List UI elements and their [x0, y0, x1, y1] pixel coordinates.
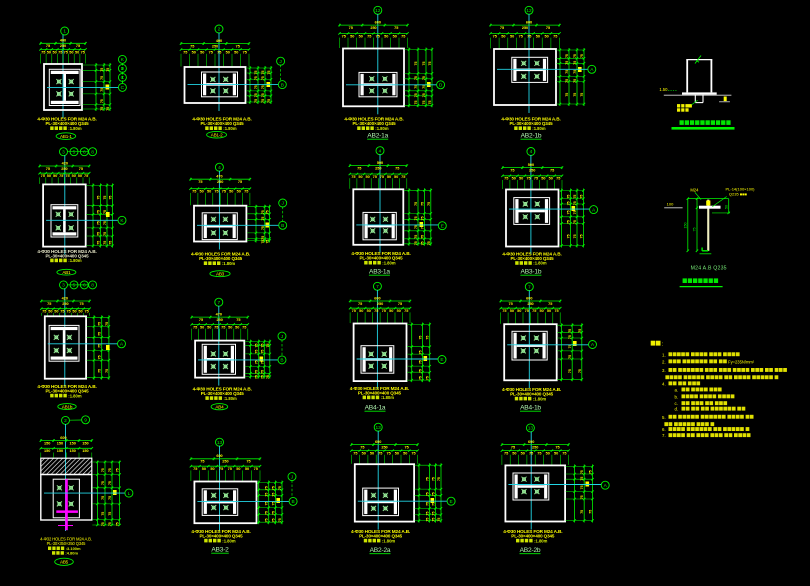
svg-text:50: 50	[362, 452, 366, 456]
svg-text:50: 50	[235, 325, 239, 329]
svg-text:75: 75	[353, 452, 357, 456]
svg-text:75: 75	[100, 76, 104, 80]
svg-text:75: 75	[401, 34, 405, 38]
svg-text:50: 50	[544, 34, 548, 38]
svg-text:75: 75	[100, 88, 104, 92]
svg-text:75: 75	[254, 76, 258, 80]
svg-text:4: 4	[218, 165, 221, 171]
svg-text:13: 13	[528, 426, 534, 432]
svg-text:PL-30×400×400 Q345: PL-30×400×400 Q345	[353, 121, 397, 126]
svg-text::1.80m: :1.80m	[68, 258, 82, 263]
svg-text:75: 75	[255, 370, 259, 374]
svg-text:75: 75	[209, 50, 213, 54]
svg-text:75: 75	[420, 216, 424, 220]
svg-text:D: D	[121, 66, 125, 72]
svg-text:75: 75	[565, 79, 569, 83]
svg-text:75: 75	[426, 477, 430, 481]
svg-text:AB3-1a: AB3-1a	[369, 269, 390, 276]
svg-text:75: 75	[59, 174, 63, 178]
svg-text:600: 600	[526, 21, 532, 25]
svg-text:75: 75	[555, 446, 559, 450]
svg-text:75: 75	[266, 344, 270, 348]
svg-text:75: 75	[419, 369, 423, 373]
svg-text:PL-30×400×400 Q345: PL-30×400×400 Q345	[511, 256, 555, 261]
svg-text:75: 75	[103, 221, 107, 225]
svg-text:75: 75	[108, 512, 112, 516]
svg-text:75: 75	[278, 518, 282, 522]
svg-text:50: 50	[192, 50, 196, 54]
svg-text::1.80m: :1.80m	[68, 126, 82, 131]
svg-text:7: 7	[528, 284, 531, 290]
svg-text:250: 250	[212, 44, 218, 48]
svg-text:75: 75	[573, 54, 577, 58]
svg-text:250: 250	[217, 318, 223, 322]
svg-text::1.80m: :1.80m	[222, 538, 236, 543]
svg-text:PL-30×400×400 Q345: PL-30×400×400 Q345	[360, 256, 404, 261]
svg-text:400: 400	[60, 39, 66, 43]
svg-text:75: 75	[527, 34, 531, 38]
svg-text:50: 50	[200, 325, 204, 329]
svg-text:75: 75	[42, 310, 46, 314]
svg-text:75: 75	[426, 518, 430, 522]
svg-text:AB1-2: AB1-2	[211, 132, 223, 137]
svg-text::1.80m: :1.80m	[224, 396, 238, 401]
svg-text::1.80m: :1.80m	[223, 126, 237, 131]
svg-text:50: 50	[226, 50, 230, 54]
svg-text:75: 75	[510, 169, 514, 173]
svg-text:75: 75	[266, 240, 270, 244]
svg-text:50: 50	[389, 309, 393, 313]
svg-text:600: 600	[528, 440, 534, 444]
svg-text:250: 250	[381, 446, 387, 450]
svg-text:250: 250	[529, 169, 535, 173]
svg-text:8: 8	[91, 283, 94, 289]
svg-text:600: 600	[375, 21, 381, 25]
svg-text:75: 75	[380, 175, 384, 179]
svg-text:4.: 4.	[662, 381, 666, 386]
svg-text:75: 75	[221, 325, 225, 329]
svg-text:50: 50	[245, 467, 249, 471]
svg-text:AB3-2: AB3-2	[211, 547, 229, 554]
svg-text:75: 75	[567, 220, 571, 224]
svg-text:75: 75	[108, 522, 112, 526]
svg-text:C: C	[121, 85, 125, 91]
svg-text::1.80m: :1.80m	[375, 126, 389, 131]
svg-text:AB5: AB5	[60, 560, 69, 565]
svg-text:75: 75	[427, 202, 431, 206]
svg-text:50: 50	[359, 309, 363, 313]
svg-text:75: 75	[97, 221, 101, 225]
svg-text:75: 75	[98, 344, 102, 348]
svg-text:50: 50	[54, 310, 58, 314]
svg-text:75: 75	[386, 452, 390, 456]
svg-text:B: B	[281, 223, 284, 229]
svg-text:75: 75	[260, 344, 264, 348]
svg-text::4.80m: :4.80m	[65, 551, 78, 556]
svg-text:4: 4	[379, 148, 382, 154]
svg-text:75: 75	[254, 85, 258, 89]
svg-text:75: 75	[374, 309, 378, 313]
svg-text:50: 50	[384, 34, 388, 38]
svg-text:75: 75	[414, 202, 418, 206]
svg-text:250: 250	[60, 44, 66, 48]
svg-text:3.: 3.	[662, 368, 666, 373]
svg-text:75: 75	[278, 486, 282, 490]
svg-text:75: 75	[265, 511, 269, 515]
svg-text:75: 75	[432, 518, 436, 522]
svg-text:75: 75	[267, 71, 271, 75]
svg-text:50: 50	[512, 177, 516, 181]
svg-text:a.: a.	[675, 388, 679, 393]
svg-text:75: 75	[97, 241, 101, 245]
svg-text:75: 75	[267, 99, 271, 103]
svg-text:75: 75	[414, 235, 418, 239]
svg-text:75: 75	[573, 93, 577, 97]
svg-text:75: 75	[565, 54, 569, 58]
svg-text:75: 75	[428, 62, 432, 66]
svg-text:75: 75	[271, 518, 275, 522]
svg-text:75: 75	[261, 85, 265, 89]
svg-text:75: 75	[573, 234, 577, 238]
svg-text:600: 600	[374, 296, 380, 300]
svg-text:400: 400	[216, 39, 222, 43]
svg-text:600: 600	[216, 454, 222, 458]
svg-text:75: 75	[567, 195, 571, 199]
svg-text:50: 50	[47, 174, 51, 178]
svg-text:50: 50	[387, 175, 391, 179]
svg-text::1.80m: :1.80m	[382, 538, 396, 543]
svg-text:75: 75	[394, 26, 398, 30]
svg-text:13: 13	[217, 440, 223, 446]
svg-text:75: 75	[573, 201, 577, 205]
svg-text:75: 75	[254, 467, 258, 471]
svg-text:7: 7	[217, 300, 220, 306]
svg-text:E: E	[449, 499, 452, 505]
svg-text:AB2-2a: AB2-2a	[370, 547, 391, 554]
svg-text:75: 75	[580, 495, 584, 499]
svg-text:250: 250	[532, 446, 538, 450]
svg-text::: :	[662, 342, 663, 348]
svg-text:75: 75	[46, 167, 50, 171]
svg-text:75: 75	[398, 302, 402, 306]
svg-text:75: 75	[261, 99, 265, 103]
svg-text:50: 50	[358, 175, 362, 179]
svg-text:75: 75	[580, 470, 584, 474]
svg-text:75: 75	[420, 241, 424, 245]
svg-text:PL-30×400×400 Q345: PL-30×400×400 Q345	[46, 389, 90, 394]
svg-text:75: 75	[573, 220, 577, 224]
svg-text:75: 75	[261, 76, 265, 80]
svg-text:75: 75	[81, 50, 85, 54]
svg-text:50: 50	[78, 174, 82, 178]
svg-text:75: 75	[420, 202, 424, 206]
svg-text:6.: 6.	[662, 427, 666, 432]
svg-text:50: 50	[207, 325, 211, 329]
svg-text:50: 50	[397, 309, 401, 313]
svg-text:75: 75	[578, 329, 582, 333]
svg-text:75: 75	[519, 34, 523, 38]
svg-text:75: 75	[502, 309, 506, 313]
svg-text:75: 75	[419, 350, 423, 354]
svg-text:50: 50	[207, 190, 211, 194]
svg-text:D: D	[439, 83, 443, 89]
svg-text:250: 250	[61, 167, 67, 171]
svg-text:75: 75	[404, 446, 408, 450]
svg-text:6: 6	[83, 283, 86, 289]
svg-text:75: 75	[260, 370, 264, 374]
svg-text:75: 75	[190, 44, 194, 48]
svg-text:AB1-1: AB1-1	[60, 134, 72, 139]
svg-text:50: 50	[350, 34, 354, 38]
svg-text:75: 75	[493, 34, 497, 38]
svg-text:75: 75	[428, 101, 432, 105]
svg-text:50: 50	[370, 452, 374, 456]
svg-text:12: 12	[526, 8, 532, 14]
svg-text:75: 75	[422, 85, 426, 89]
svg-text:75: 75	[183, 50, 187, 54]
svg-text:75: 75	[58, 50, 62, 54]
svg-text:250: 250	[375, 167, 381, 171]
svg-text:75: 75	[200, 460, 204, 464]
svg-text:L: L	[128, 491, 131, 497]
svg-text:75: 75	[198, 180, 202, 184]
svg-text:75: 75	[109, 241, 113, 245]
svg-text:50: 50	[229, 190, 233, 194]
svg-text:75: 75	[426, 512, 430, 516]
svg-text:50: 50	[228, 325, 232, 329]
svg-text:75: 75	[236, 44, 240, 48]
svg-text:150: 150	[82, 449, 88, 453]
svg-text:75: 75	[109, 196, 113, 200]
svg-text:150: 150	[57, 449, 63, 453]
svg-text:75: 75	[414, 85, 418, 89]
svg-text:75: 75	[255, 360, 259, 364]
svg-text:75: 75	[101, 481, 105, 485]
svg-text:75: 75	[580, 93, 584, 97]
svg-text:AB2-1b: AB2-1b	[521, 133, 542, 140]
svg-text:75: 75	[265, 518, 269, 522]
svg-text:75: 75	[422, 93, 426, 97]
svg-text:75: 75	[84, 310, 88, 314]
svg-text:75: 75	[422, 62, 426, 66]
svg-text:150: 150	[70, 441, 76, 445]
svg-text:75: 75	[548, 302, 552, 306]
svg-text:B: B	[281, 82, 284, 88]
svg-text:75: 75	[261, 217, 265, 221]
svg-text:50: 50	[554, 452, 558, 456]
svg-text:75: 75	[106, 68, 110, 72]
svg-text:75: 75	[100, 107, 104, 111]
svg-text:50: 50	[521, 452, 525, 456]
svg-text:PL-30×400×400 Q345: PL-30×400×400 Q345	[511, 534, 555, 539]
svg-text:75: 75	[395, 167, 399, 171]
svg-text:E: E	[441, 223, 444, 229]
svg-text:75: 75	[580, 477, 584, 481]
svg-text:250: 250	[62, 302, 68, 306]
svg-text:75: 75	[254, 93, 258, 97]
svg-text:50: 50	[53, 174, 57, 178]
svg-text:AB3-1b: AB3-1b	[521, 269, 542, 276]
svg-text:75: 75	[573, 70, 577, 74]
svg-text:250: 250	[377, 302, 383, 306]
svg-text:75: 75	[414, 101, 418, 105]
svg-text:75: 75	[97, 232, 101, 236]
svg-text:470: 470	[216, 175, 222, 179]
svg-text:d.: d.	[675, 407, 679, 412]
svg-text:50: 50	[510, 34, 514, 38]
svg-text:B: B	[280, 358, 283, 364]
svg-text:50: 50	[501, 34, 505, 38]
svg-text:75: 75	[266, 210, 270, 214]
svg-text:75: 75	[97, 196, 101, 200]
svg-text:75: 75	[246, 460, 250, 464]
svg-text:75: 75	[271, 493, 275, 497]
svg-text:1: 1	[63, 29, 66, 35]
svg-text:75: 75	[101, 468, 105, 472]
svg-text:75: 75	[432, 492, 436, 496]
svg-text:AB2-2b: AB2-2b	[520, 547, 541, 554]
svg-text::1.80m: :1.80m	[222, 261, 236, 266]
svg-text:50: 50	[395, 452, 399, 456]
svg-text:50: 50	[48, 310, 52, 314]
svg-text:2.: 2.	[662, 359, 666, 364]
svg-text:50: 50	[200, 50, 204, 54]
svg-text:PL-30×400×400 Q345: PL-30×400×400 Q345	[510, 121, 554, 126]
svg-text:75: 75	[79, 167, 83, 171]
svg-text:75: 75	[266, 375, 270, 379]
svg-text:50: 50	[234, 50, 238, 54]
svg-text:75: 75	[265, 486, 269, 490]
svg-text:1.: 1.	[662, 352, 666, 357]
svg-text:75: 75	[565, 61, 569, 65]
svg-text:9: 9	[84, 418, 87, 424]
svg-text:75: 75	[532, 309, 536, 313]
svg-text:75: 75	[254, 99, 258, 103]
svg-text:75: 75	[352, 309, 356, 313]
svg-text:75: 75	[573, 195, 577, 199]
svg-text:150: 150	[70, 449, 76, 453]
svg-text:50: 50	[52, 50, 56, 54]
svg-text:75: 75	[260, 350, 264, 354]
svg-text:75: 75	[567, 210, 571, 214]
svg-text:E: E	[440, 357, 443, 363]
svg-text:75: 75	[565, 93, 569, 97]
svg-text:75: 75	[98, 322, 102, 326]
svg-text:75: 75	[66, 310, 70, 314]
svg-text:75: 75	[261, 93, 265, 97]
svg-text:75: 75	[106, 107, 110, 111]
svg-text:75: 75	[103, 241, 107, 245]
svg-text:PL-30×400×400 Q345: PL-30×400×400 Q345	[201, 391, 245, 396]
svg-text:PL-30×400×400 Q345: PL-30×400×400 Q345	[359, 534, 403, 539]
svg-text:250: 250	[527, 302, 533, 306]
svg-text:75: 75	[84, 174, 88, 178]
svg-text:75: 75	[422, 76, 426, 80]
svg-text:50: 50	[199, 190, 203, 194]
svg-text:B: B	[291, 499, 294, 505]
svg-text:75: 75	[414, 216, 418, 220]
svg-text:M24 A.B Q235: M24 A.B Q235	[691, 266, 727, 272]
svg-text:500: 500	[528, 163, 534, 167]
svg-text:50: 50	[541, 177, 545, 181]
svg-text::1.80m: :1.80m	[533, 396, 547, 401]
svg-text:75: 75	[243, 50, 247, 54]
svg-text:75: 75	[108, 481, 112, 485]
svg-text:75: 75	[404, 309, 408, 313]
svg-text:75: 75	[349, 26, 353, 30]
svg-text:50: 50	[546, 452, 550, 456]
svg-text:AB3: AB3	[216, 271, 225, 276]
svg-text::1.80m: :1.80m	[532, 126, 546, 131]
svg-text:75: 75	[529, 452, 533, 456]
svg-text:250: 250	[522, 26, 528, 30]
svg-text:75: 75	[100, 68, 104, 72]
svg-text:75: 75	[414, 62, 418, 66]
svg-text:75: 75	[100, 99, 104, 103]
svg-text:5.: 5.	[662, 415, 666, 420]
svg-text:6: 6	[83, 149, 86, 155]
svg-text:75: 75	[261, 210, 265, 214]
svg-text:50: 50	[359, 34, 363, 38]
svg-text:75: 75	[261, 226, 265, 230]
svg-text:75: 75	[261, 240, 265, 244]
svg-text:150: 150	[44, 449, 50, 453]
svg-text:50: 50	[210, 467, 214, 471]
svg-text:420: 420	[62, 296, 68, 300]
svg-text:75: 75	[550, 169, 554, 173]
svg-text:75: 75	[432, 477, 436, 481]
svg-text:75: 75	[693, 228, 697, 232]
svg-text:50: 50	[403, 452, 407, 456]
svg-text:75: 75	[101, 512, 105, 516]
svg-text:250: 250	[370, 26, 376, 30]
svg-text:470: 470	[216, 313, 222, 317]
svg-text:75: 75	[46, 44, 50, 48]
svg-text:50: 50	[512, 452, 516, 456]
svg-text:75: 75	[101, 496, 105, 500]
svg-text:420: 420	[62, 161, 68, 165]
svg-text:75: 75	[508, 302, 512, 306]
svg-text:75: 75	[101, 522, 105, 526]
svg-text:75: 75	[568, 329, 572, 333]
svg-text:PL-30×400×400 Q345: PL-30×400×400 Q345	[46, 253, 90, 258]
svg-text::1.80m: :1.80m	[533, 261, 547, 266]
svg-text:75: 75	[360, 446, 364, 450]
svg-text:75: 75	[556, 177, 560, 181]
svg-text:50: 50	[72, 310, 76, 314]
svg-text:75: 75	[578, 369, 582, 373]
svg-text:75: 75	[271, 486, 275, 490]
svg-text:PL-30×400×400 Q345: PL-30×400×400 Q345	[46, 121, 90, 126]
svg-text:50: 50	[549, 177, 553, 181]
svg-text:75: 75	[534, 177, 538, 181]
svg-text:75: 75	[228, 467, 232, 471]
svg-text:75: 75	[41, 50, 45, 54]
svg-text:75: 75	[238, 180, 242, 184]
svg-text:75: 75	[567, 201, 571, 205]
svg-text:75: 75	[193, 325, 197, 329]
svg-text:75: 75	[427, 241, 431, 245]
svg-text:75: 75	[567, 234, 571, 238]
svg-text:50: 50	[517, 309, 521, 313]
svg-text::1.80m: :1.80m	[68, 393, 82, 398]
svg-text:75: 75	[565, 70, 569, 74]
svg-text:600: 600	[60, 436, 66, 440]
svg-text:Q235 ■■■: Q235 ■■■	[729, 191, 748, 196]
svg-text:50: 50	[237, 190, 241, 194]
svg-text:75: 75	[589, 510, 593, 514]
svg-text:3: 3	[62, 283, 65, 289]
